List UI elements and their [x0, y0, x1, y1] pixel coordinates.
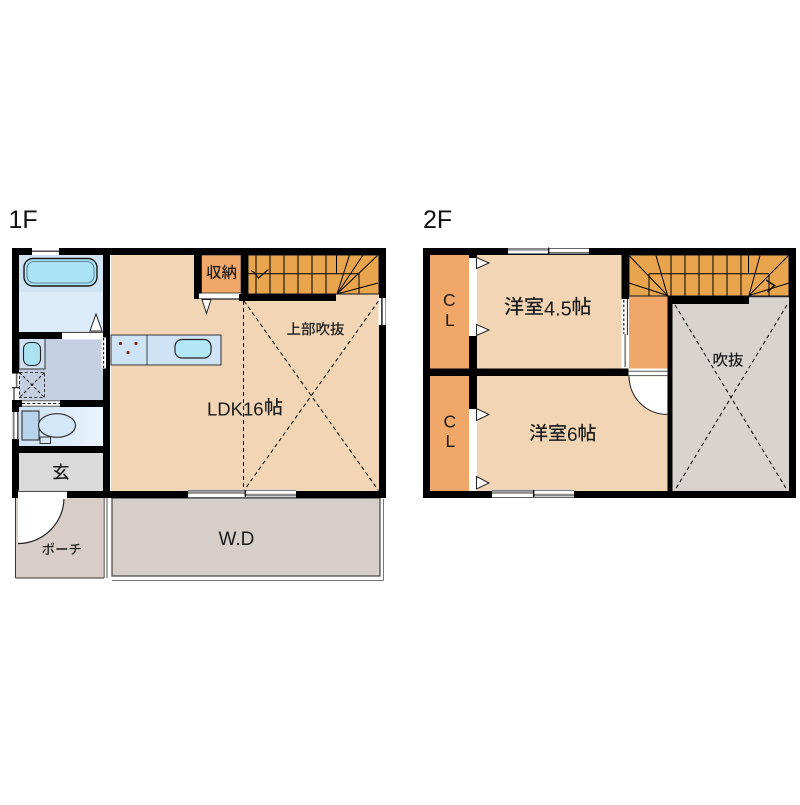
svg-text:4.5: 4.5	[544, 299, 572, 321]
svg-text:C: C	[443, 290, 456, 310]
svg-text:2F: 2F	[423, 206, 452, 234]
svg-text:W.D: W.D	[219, 529, 255, 550]
svg-text:L: L	[445, 310, 455, 330]
svg-text:L: L	[446, 431, 456, 451]
svg-text:C: C	[444, 412, 457, 432]
svg-text:LDK16: LDK16	[207, 399, 264, 420]
svg-text:1F: 1F	[9, 206, 38, 234]
svg-text:6: 6	[567, 425, 578, 446]
